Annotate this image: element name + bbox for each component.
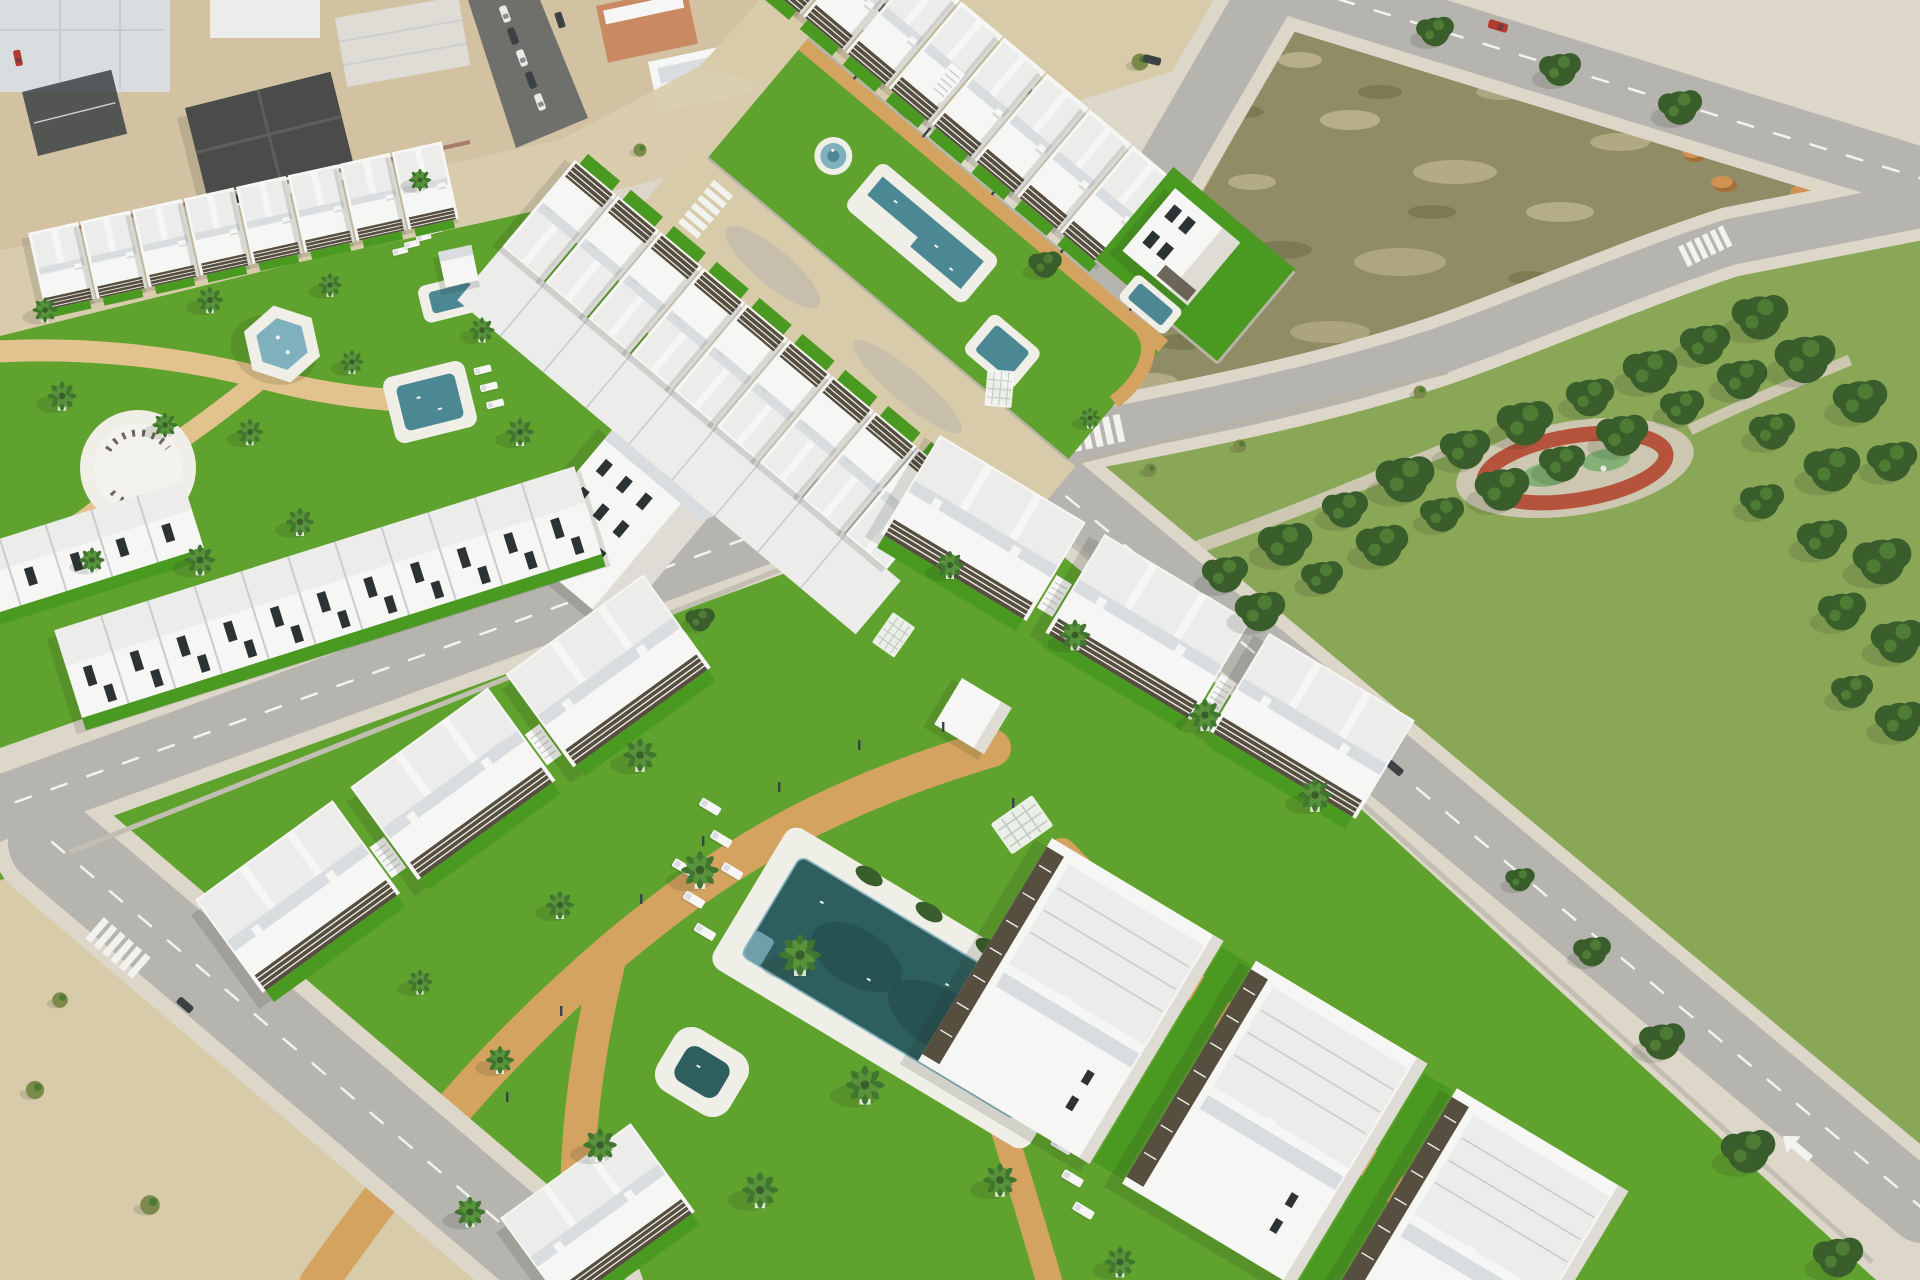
aerial-render-stage: Aerial 3D render of a coastal residentia…: [0, 0, 1920, 1280]
trellis-panel: [984, 369, 1014, 408]
aerial-render: Aerial 3D render of a coastal residentia…: [0, 0, 1920, 1280]
